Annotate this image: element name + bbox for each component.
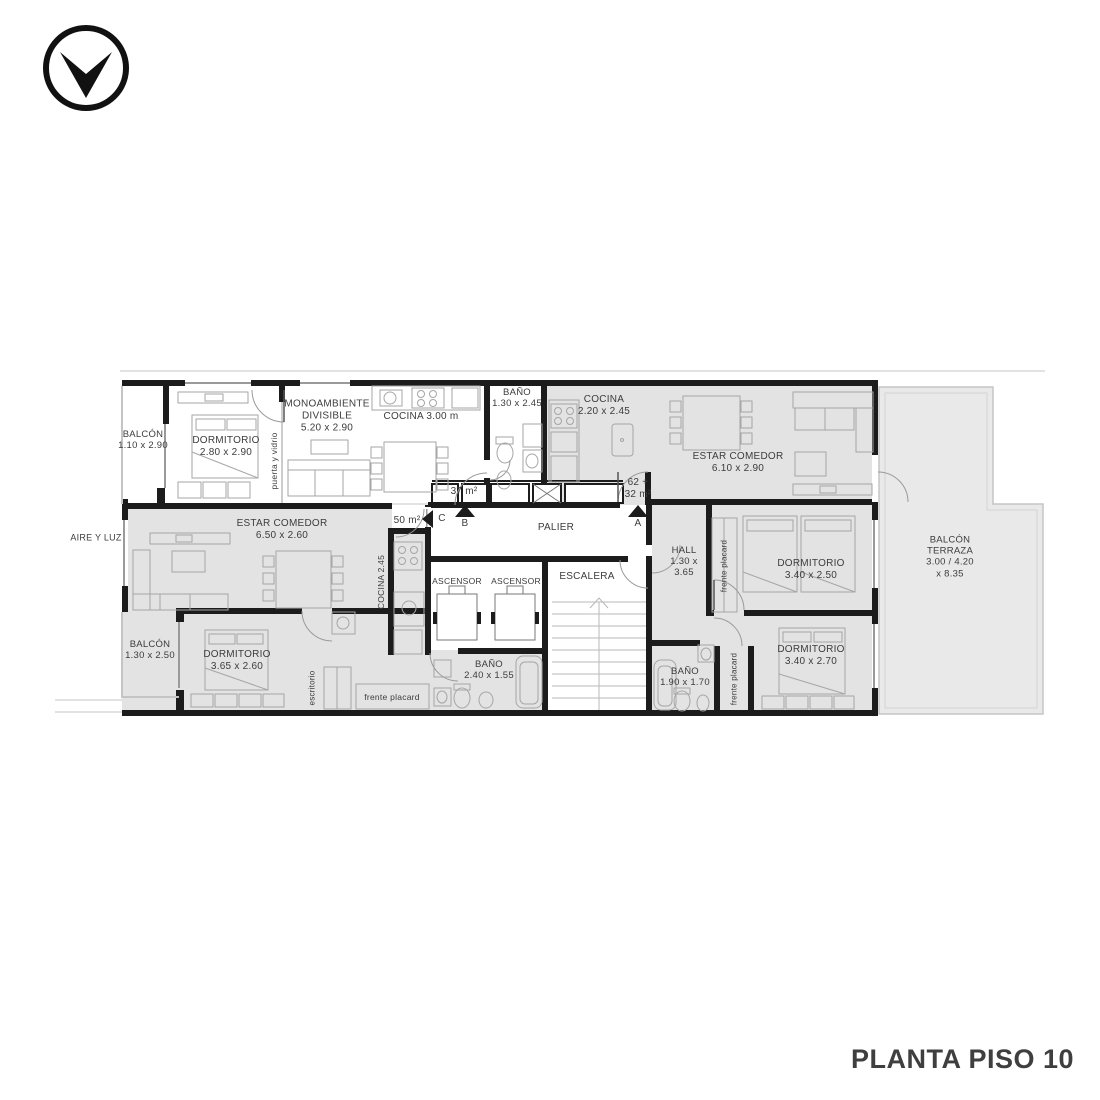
section-marker-a-label: A bbox=[635, 518, 642, 530]
room-label-placard-right-top: frente placard bbox=[719, 540, 728, 592]
elevator-rails bbox=[433, 612, 539, 624]
section-marker-c-label: C bbox=[438, 513, 445, 525]
room-label-dormitorio-left: DORMITORIO3.65 x 2.60 bbox=[203, 649, 270, 673]
annotation-puerta-y-vidrio: puerta y vidrio bbox=[269, 432, 279, 489]
room-label-monoambiente: MONOAMBIENTEDIVISIBLE5.20 x 2.90 bbox=[284, 398, 369, 433]
annotation-area-50: 50 m² bbox=[394, 515, 421, 527]
room-label-ascensor-1: ASCENSOR bbox=[432, 576, 482, 586]
plan-title: PLANTA PISO 10 bbox=[851, 1044, 1074, 1075]
room-label-palier: PALIER bbox=[538, 522, 574, 534]
room-label-cocina-top: COCINA 3.00 m bbox=[384, 411, 459, 423]
annotation-area-37: 37 m² bbox=[451, 486, 478, 498]
room-label-dormitorio-right-bottom: DORMITORIO3.40 x 2.70 bbox=[777, 644, 844, 668]
room-label-dormitorio-top-left: DORMITORIO2.80 x 2.90 bbox=[192, 435, 259, 459]
room-label-balcon-top-left: BALCÓN1.10 x 2.90 bbox=[118, 429, 168, 451]
stairs bbox=[552, 598, 646, 710]
section-markers bbox=[422, 505, 648, 528]
room-label-placard-right-bottom: frente placard bbox=[729, 653, 738, 705]
room-label-bano-right: BAÑO1.90 x 1.70 bbox=[660, 666, 710, 688]
room-label-cocina-mid: COCINA 2.45 bbox=[376, 555, 386, 609]
annotation-aire-y-luz: AIRE Y LUZ bbox=[70, 533, 121, 544]
floor-plan-page: BALCÓN1.10 x 2.90 DORMITORIO2.80 x 2.90 … bbox=[0, 0, 1100, 1100]
room-label-balcon-terraza: BALCÓNTERRAZA3.00 / 4.20x 8.35 bbox=[926, 535, 974, 580]
section-marker-b-label: B bbox=[462, 518, 469, 530]
room-label-placard-left-bottom: frente placard bbox=[364, 692, 419, 702]
room-label-estar-comedor-right: ESTAR COMEDOR6.10 x 2.90 bbox=[693, 451, 784, 475]
room-label-escalera: ESCALERA bbox=[559, 571, 614, 583]
annotation-area-62-32: 62 +32 m² bbox=[625, 477, 652, 501]
room-label-bano-mid: BAÑO2.40 x 1.55 bbox=[464, 659, 514, 681]
room-label-cocina-right: COCINA2.20 x 2.45 bbox=[578, 394, 630, 418]
room-label-escritorio: escritorio bbox=[307, 671, 316, 706]
room-label-bano-top: BAÑO1.30 x 2.45 bbox=[492, 387, 542, 409]
room-label-dormitorio-right-top: DORMITORIO3.40 x 2.50 bbox=[777, 558, 844, 582]
room-label-estar-comedor-left: ESTAR COMEDOR6.50 x 2.60 bbox=[237, 518, 328, 542]
elevator-cars bbox=[437, 586, 535, 640]
room-label-hall: HALL1.30 x3.65 bbox=[670, 545, 697, 579]
room-label-ascensor-2: ASCENSOR bbox=[491, 576, 541, 586]
room-label-balcon-left: BALCÓN1.30 x 2.50 bbox=[125, 639, 175, 661]
